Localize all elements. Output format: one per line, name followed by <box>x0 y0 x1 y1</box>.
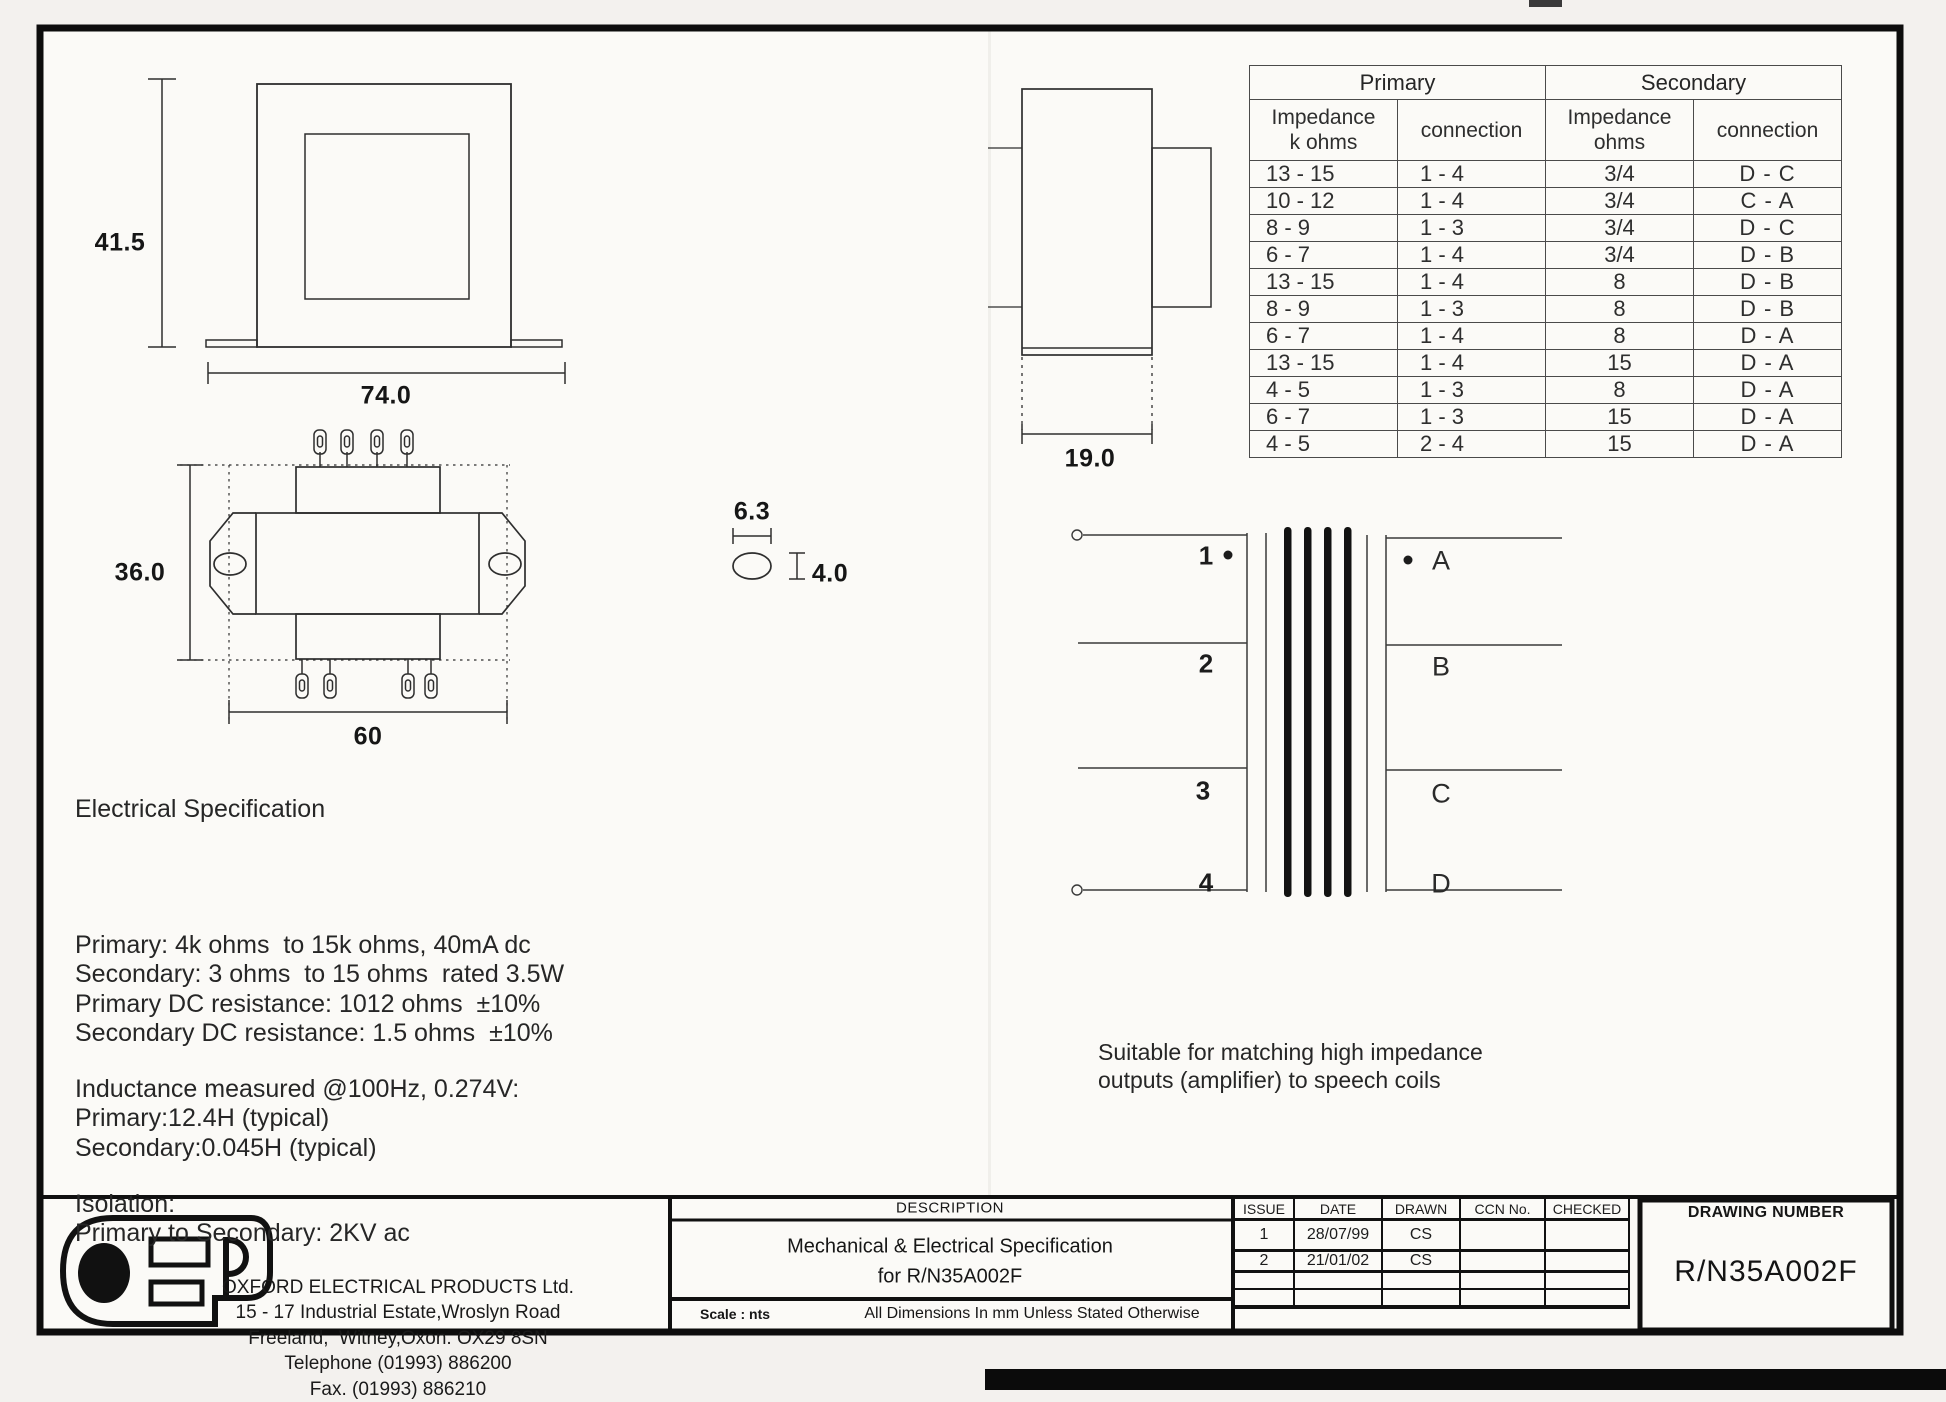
primary-group-header: Primary <box>1250 66 1546 100</box>
front-height-dim: 41.5 <box>95 229 146 258</box>
primary-connection-cell: 1 - 4 <box>1398 242 1546 269</box>
issue-table-row <box>1234 1272 1629 1290</box>
slot-height-dim: 4.0 <box>812 560 848 589</box>
secondary-connection-cell: D - A <box>1694 431 1842 458</box>
company-address-line: Freeland, Witney,Oxon. OX29 8SN <box>130 1326 666 1352</box>
date-cell <box>1294 1306 1382 1308</box>
impedance-table-row: 4 - 5 1 - 3 8 D - A <box>1250 377 1842 404</box>
impedance-matching-table: Primary Secondary Impedance k ohms conne… <box>1249 65 1842 458</box>
description-line-1: Mechanical & Electrical Specification <box>787 1236 1113 1259</box>
ccn-cell <box>1460 1251 1545 1272</box>
ccn-cell <box>1460 1306 1545 1308</box>
impedance-table-row: 10 - 12 1 - 4 3/4 C - A <box>1250 188 1842 215</box>
application-note: Suitable for matching high impedanceoutp… <box>1098 954 1483 1094</box>
impedance-table-row: 13 - 15 1 - 4 8 D - B <box>1250 269 1842 296</box>
col-header-secondary-connection: connection <box>1694 100 1842 161</box>
issue-cell <box>1234 1306 1294 1308</box>
primary-impedance-cell: 6 - 7 <box>1250 404 1398 431</box>
secondary-phase-dot <box>1404 556 1413 565</box>
primary-connection-cell: 1 - 4 <box>1398 350 1546 377</box>
primary-phase-dot <box>1224 551 1233 560</box>
drawing-number: R/N35A002F <box>1674 1255 1857 1289</box>
primary-terminal-3: 3 <box>1196 776 1210 807</box>
date-cell: 28/07/99 <box>1294 1220 1382 1251</box>
side-width-dim: 19.0 <box>1065 445 1116 474</box>
company-address-line: 15 - 17 Industrial Estate,Wroslyn Road <box>130 1300 666 1326</box>
company-address-line: Telephone (01993) 886200 <box>130 1351 666 1377</box>
primary-connection-cell: 1 - 3 <box>1398 215 1546 242</box>
spec-line: Primary: 4k ohms to 15k ohms, 40mA dc <box>75 931 564 961</box>
drawn-cell: CS <box>1382 1220 1460 1251</box>
date-cell <box>1294 1289 1382 1306</box>
application-note-line: outputs (amplifier) to speech coils <box>1098 1066 1483 1094</box>
secondary-connection-cell: D - A <box>1694 377 1842 404</box>
secondary-connection-cell: C - A <box>1694 188 1842 215</box>
company-address-block: OXFORD ELECTRICAL PRODUCTS Ltd.15 - 17 I… <box>130 1198 666 1402</box>
issue-revision-table: ISSUE DATE DRAWN CCN No. CHECKED 1 28/07… <box>1233 1197 1630 1309</box>
impedance-table-row: 6 - 7 1 - 3 15 D - A <box>1250 404 1842 431</box>
primary-impedance-cell: 4 - 5 <box>1250 431 1398 458</box>
issue-table-row <box>1234 1306 1629 1308</box>
secondary-connection-cell: D - A <box>1694 323 1842 350</box>
impedance-table-row: 6 - 7 1 - 4 8 D - A <box>1250 323 1842 350</box>
fold-crease <box>988 30 991 1195</box>
issue-cell: 2 <box>1234 1251 1294 1272</box>
issue-cell: 1 <box>1234 1220 1294 1251</box>
scale-label: Scale : nts <box>700 1306 770 1322</box>
secondary-group-header: Secondary <box>1546 66 1842 100</box>
secondary-terminal-b: B <box>1432 652 1450 683</box>
checked-col-header: CHECKED <box>1545 1198 1629 1220</box>
electrical-spec-title: Electrical Specification <box>75 795 325 825</box>
issue-table-body: 1 28/07/99 CS 2 21/01/02 CS <box>1234 1220 1629 1309</box>
checked-cell <box>1545 1272 1629 1290</box>
secondary-impedance-cell: 3/4 <box>1546 242 1694 269</box>
description-label: DESCRIPTION <box>896 1200 1004 1217</box>
date-cell: 21/01/02 <box>1294 1251 1382 1272</box>
impedance-table-row: 8 - 9 1 - 3 3/4 D - C <box>1250 215 1842 242</box>
primary-impedance-cell: 13 - 15 <box>1250 350 1398 377</box>
primary-impedance-cell: 8 - 9 <box>1250 296 1398 323</box>
secondary-impedance-cell: 3/4 <box>1546 215 1694 242</box>
top-height-dim: 36.0 <box>115 559 166 588</box>
drawn-cell: CS <box>1382 1251 1460 1272</box>
primary-connection-cell: 1 - 4 <box>1398 269 1546 296</box>
primary-connection-cell: 1 - 3 <box>1398 377 1546 404</box>
secondary-connection-cell: D - A <box>1694 350 1842 377</box>
primary-impedance-cell: 8 - 9 <box>1250 215 1398 242</box>
drawing-number-label: DRAWING NUMBER <box>1688 1204 1844 1222</box>
primary-connection-cell: 1 - 4 <box>1398 161 1546 188</box>
scan-edge-artifact <box>985 1369 1946 1390</box>
primary-terminal-4: 4 <box>1199 868 1213 899</box>
ccn-cell <box>1460 1220 1545 1251</box>
ccn-cell <box>1460 1272 1545 1290</box>
primary-impedance-cell: 13 - 15 <box>1250 269 1398 296</box>
primary-impedance-cell: 10 - 12 <box>1250 188 1398 215</box>
checked-cell <box>1545 1251 1629 1272</box>
scanned-drawing-page: 41.5 74.0 36.0 60 6.3 4.0 19.0 1 2 3 4 A… <box>0 0 1946 1390</box>
secondary-connection-cell: D - C <box>1694 161 1842 188</box>
impedance-table-body: 13 - 15 1 - 4 3/4 D - C 10 - 12 1 - 4 3/… <box>1250 161 1842 458</box>
secondary-terminal-c: C <box>1431 779 1451 810</box>
issue-col-header: ISSUE <box>1234 1198 1294 1220</box>
secondary-connection-cell: D - A <box>1694 404 1842 431</box>
secondary-impedance-cell: 8 <box>1546 377 1694 404</box>
ccn-cell <box>1460 1289 1545 1306</box>
col-header-primary-impedance: Impedance k ohms <box>1250 100 1398 161</box>
secondary-impedance-cell: 3/4 <box>1546 188 1694 215</box>
issue-cell <box>1234 1289 1294 1306</box>
checked-cell <box>1545 1306 1629 1308</box>
slot-width-dim: 6.3 <box>734 498 770 527</box>
col-header-secondary-impedance: Impedance ohms <box>1546 100 1694 161</box>
date-cell <box>1294 1272 1382 1290</box>
primary-connection-cell: 1 - 3 <box>1398 404 1546 431</box>
secondary-connection-cell: D - B <box>1694 269 1842 296</box>
drawn-cell <box>1382 1272 1460 1290</box>
secondary-terminal-d: D <box>1431 869 1451 900</box>
drawn-cell <box>1382 1289 1460 1306</box>
date-col-header: DATE <box>1294 1198 1382 1220</box>
secondary-connection-cell: D - B <box>1694 242 1842 269</box>
drawn-cell <box>1382 1306 1460 1308</box>
issue-table-row: 1 28/07/99 CS <box>1234 1220 1629 1251</box>
secondary-terminal-a: A <box>1432 546 1450 577</box>
front-width-dim: 74.0 <box>361 382 412 411</box>
secondary-impedance-cell: 8 <box>1546 323 1694 350</box>
scan-top-artifact <box>1529 0 1562 7</box>
application-note-line: Suitable for matching high impedance <box>1098 1038 1483 1066</box>
spec-line: Inductance measured @100Hz, 0.274V: <box>75 1075 519 1105</box>
impedance-table-row: 13 - 15 1 - 4 3/4 D - C <box>1250 161 1842 188</box>
primary-terminal-2: 2 <box>1199 649 1213 680</box>
ccn-col-header: CCN No. <box>1460 1198 1545 1220</box>
impedance-table-row: 8 - 9 1 - 3 8 D - B <box>1250 296 1842 323</box>
primary-connection-cell: 1 - 4 <box>1398 188 1546 215</box>
checked-cell <box>1545 1289 1629 1306</box>
primary-connection-cell: 1 - 4 <box>1398 323 1546 350</box>
company-address-line: OXFORD ELECTRICAL PRODUCTS Ltd. <box>130 1275 666 1301</box>
dimensions-note: All Dimensions In mm Unless Stated Other… <box>864 1305 1199 1323</box>
primary-connection-cell: 1 - 3 <box>1398 296 1546 323</box>
impedance-table-row: 13 - 15 1 - 4 15 D - A <box>1250 350 1842 377</box>
company-address-line: Fax. (01993) 886210 <box>130 1377 666 1402</box>
primary-impedance-cell: 6 - 7 <box>1250 242 1398 269</box>
issue-table-row <box>1234 1289 1629 1306</box>
secondary-impedance-cell: 15 <box>1546 431 1694 458</box>
primary-connection-cell: 2 - 4 <box>1398 431 1546 458</box>
secondary-impedance-cell: 15 <box>1546 404 1694 431</box>
primary-terminal-1: 1 <box>1199 541 1213 572</box>
col-header-primary-connection: connection <box>1398 100 1546 161</box>
checked-cell <box>1545 1220 1629 1251</box>
primary-impedance-cell: 13 - 15 <box>1250 161 1398 188</box>
impedance-table-row: 4 - 5 2 - 4 15 D - A <box>1250 431 1842 458</box>
drawn-col-header: DRAWN <box>1382 1198 1460 1220</box>
secondary-impedance-cell: 15 <box>1546 350 1694 377</box>
secondary-impedance-cell: 8 <box>1546 296 1694 323</box>
description-line-2: for R/N35A002F <box>878 1266 1023 1289</box>
secondary-impedance-cell: 8 <box>1546 269 1694 296</box>
logo-o <box>78 1243 130 1303</box>
secondary-connection-cell: D - C <box>1694 215 1842 242</box>
issue-cell <box>1234 1272 1294 1290</box>
top-width-dim: 60 <box>354 723 383 752</box>
impedance-table-row: 6 - 7 1 - 4 3/4 D - B <box>1250 242 1842 269</box>
secondary-impedance-cell: 3/4 <box>1546 161 1694 188</box>
secondary-connection-cell: D - B <box>1694 296 1842 323</box>
primary-impedance-cell: 4 - 5 <box>1250 377 1398 404</box>
primary-impedance-cell: 6 - 7 <box>1250 323 1398 350</box>
issue-table-row: 2 21/01/02 CS <box>1234 1251 1629 1272</box>
